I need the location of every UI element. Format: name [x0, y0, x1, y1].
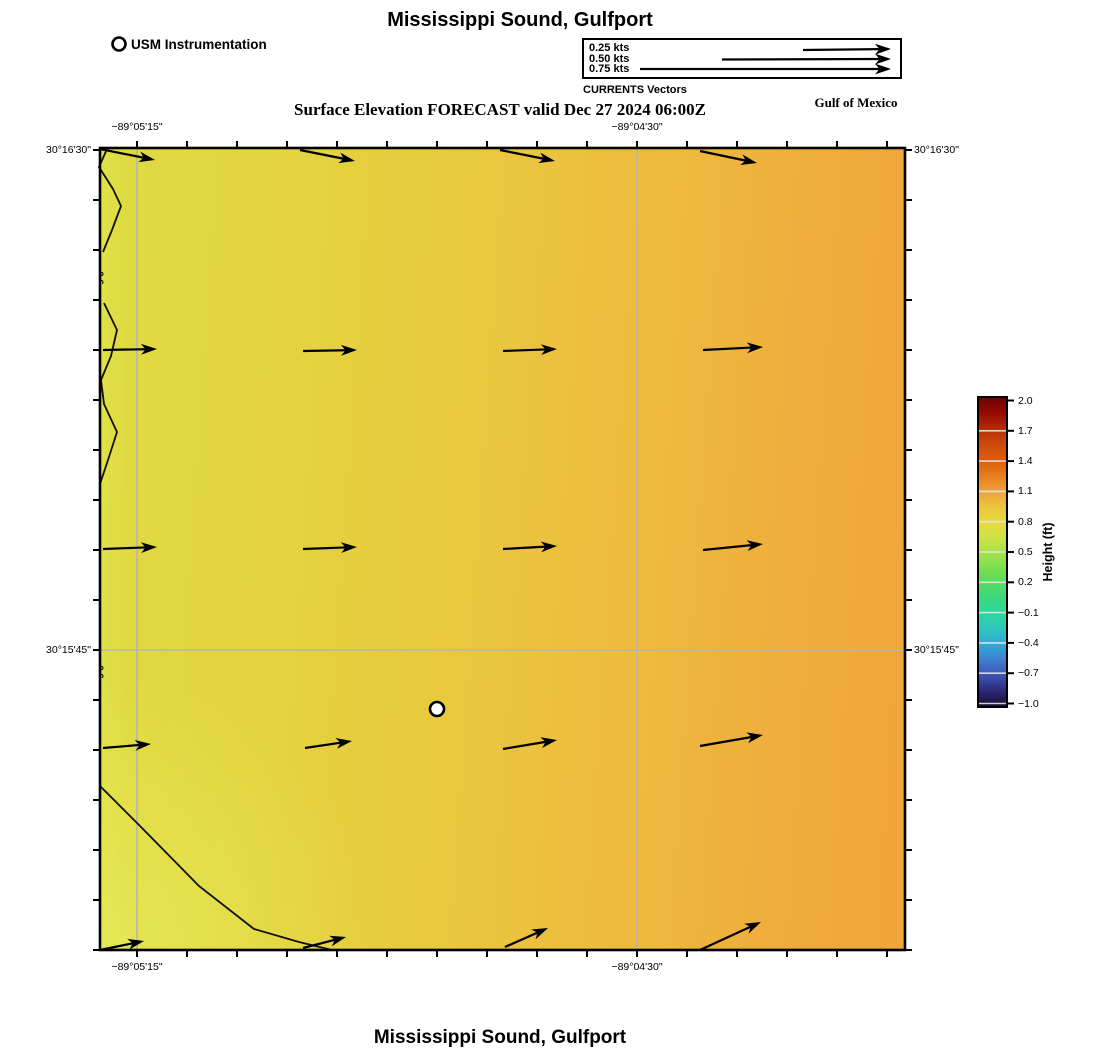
colorbar-tick-labels: 2.01.71.41.10.80.50.2−0.1−0.4−0.7−1.0: [0, 0, 1100, 1050]
colorbar-tick-label: 2.0: [1018, 395, 1033, 407]
colorbar-tick-label: 0.5: [1018, 546, 1033, 558]
colorbar-tick-label: 1.1: [1018, 485, 1033, 497]
colorbar-tick-label: 0.8: [1018, 516, 1033, 528]
colorbar-tick-label: 0.2: [1018, 576, 1033, 588]
colorbar-tick-label: −0.1: [1018, 607, 1039, 619]
colorbar-tick-label: −0.4: [1018, 637, 1039, 649]
colorbar-tick-label: 1.4: [1018, 455, 1033, 467]
bottom-title: Mississippi Sound, Gulfport: [374, 1027, 626, 1049]
colorbar-tick-label: −0.7: [1018, 667, 1039, 679]
colorbar-tick-label: −1.0: [1018, 698, 1039, 710]
colorbar-tick-label: 1.7: [1018, 425, 1033, 437]
forecast-plot-page: Mississippi Sound, Gulfport USM Instrume…: [0, 0, 1100, 1050]
